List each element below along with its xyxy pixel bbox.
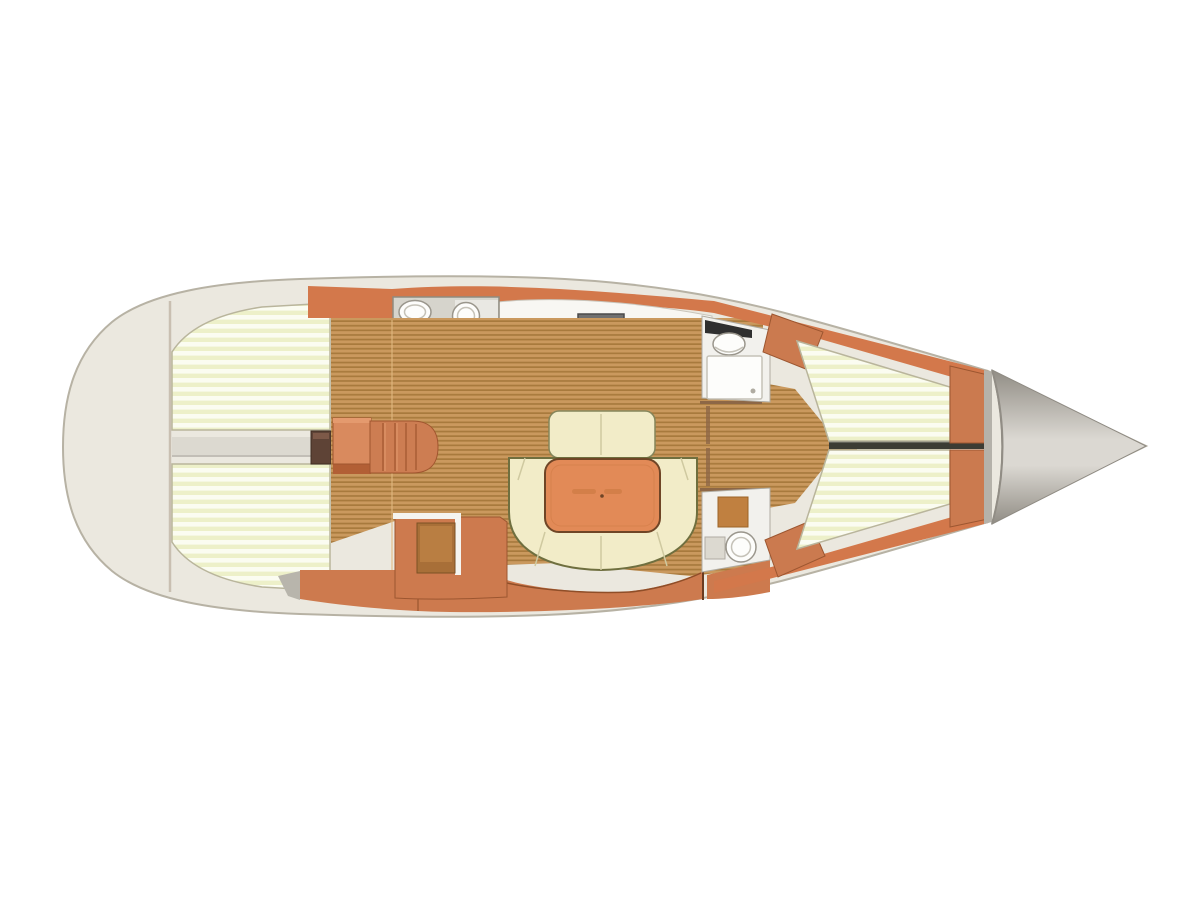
stairs-steps	[370, 421, 438, 473]
nav-desk-trim-side	[455, 519, 461, 575]
companionway-stairs	[333, 418, 438, 474]
table-detail-mark	[572, 489, 596, 494]
berth-head-panel-top	[950, 366, 988, 443]
table-center-dot	[600, 494, 604, 498]
boat-floorplan-canvas	[0, 0, 1200, 900]
head-bench	[705, 537, 725, 559]
bow-bulkhead-strip	[984, 370, 992, 524]
door-jamb	[706, 406, 710, 444]
chart-table-top	[420, 526, 452, 562]
nav-station	[393, 513, 507, 599]
nav-desk-trim-top	[393, 513, 461, 519]
forward-head-vanity	[702, 316, 770, 402]
toilet-icon	[726, 532, 756, 562]
engine-access-box-highlight	[313, 433, 329, 439]
berth-head-panel-bottom	[950, 450, 988, 527]
stairs-landing	[333, 418, 371, 464]
stairs-landing-highlight	[333, 418, 371, 423]
dinette-bench	[549, 411, 655, 458]
aft-corridor-floor	[172, 437, 311, 457]
forward-head-toilet	[702, 488, 770, 572]
table-detail-mark	[604, 489, 622, 494]
shower-drain	[751, 389, 756, 394]
door-jamb	[706, 448, 710, 486]
shower-grate	[718, 497, 748, 527]
boat-floorplan	[0, 0, 1200, 900]
